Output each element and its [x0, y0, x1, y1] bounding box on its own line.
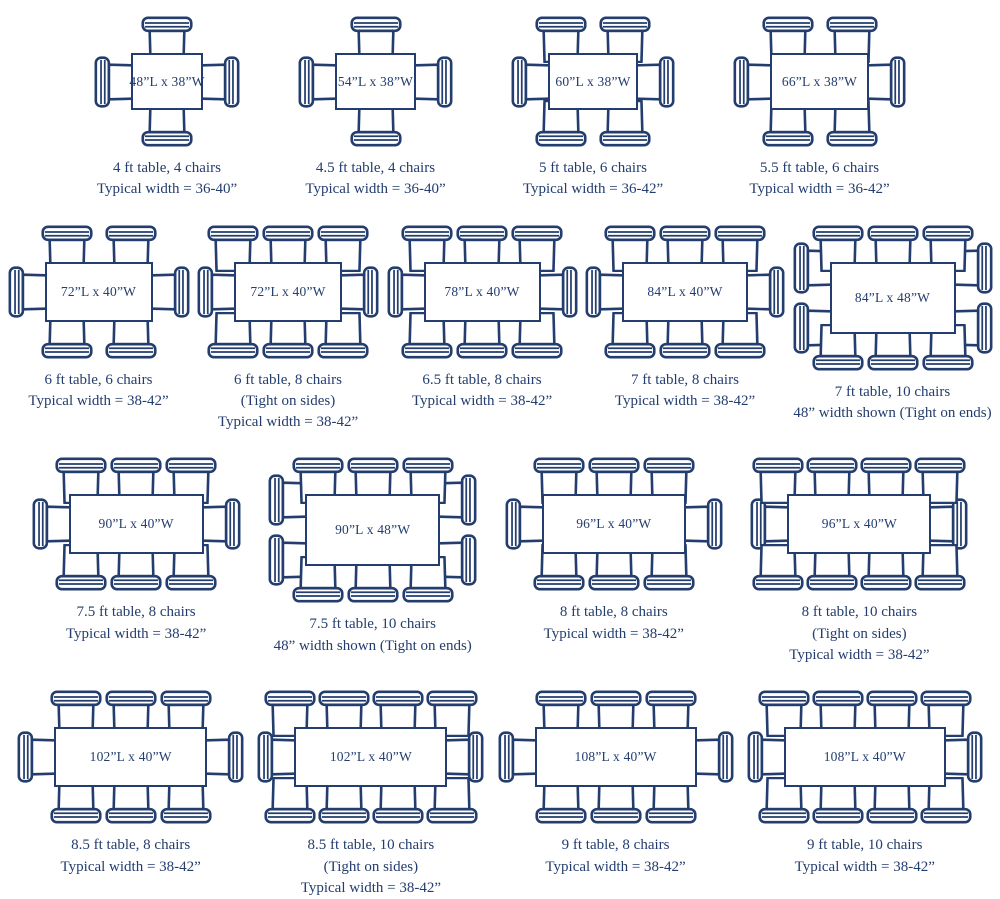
- diagram-row: 48”L x 38”W4 ft table, 4 chairsTypical w…: [0, 16, 1000, 201]
- table-size-label: 48”L x 38”W: [129, 74, 204, 90]
- caption-line: Typical width = 38-42”: [66, 624, 206, 645]
- caption-line: 7.5 ft table, 10 chairs: [274, 614, 472, 635]
- figure-caption: 7.5 ft table, 8 chairsTypical width = 38…: [66, 602, 206, 645]
- table-size-label: 108”L x 40”W: [575, 749, 657, 765]
- table-seating-diagram: 48”L x 38”W4 ft table, 4 chairsTypical w…: [0, 0, 1000, 899]
- table-top: 78”L x 40”W: [424, 262, 541, 322]
- table-diagram: 102”L x 40”W: [17, 690, 244, 824]
- table-top: 90”L x 40”W: [69, 494, 204, 554]
- diagram-row: 90”L x 40”W7.5 ft table, 8 chairsTypical…: [0, 457, 1000, 666]
- table-top: 66”L x 38”W: [770, 53, 869, 110]
- figure-caption: 8.5 ft table, 10 chairs(Tight on sides)T…: [301, 835, 441, 899]
- table-size-label: 60”L x 38”W: [555, 74, 630, 90]
- table-figure: 72”L x 40”W6 ft table, 6 chairsTypical w…: [8, 225, 190, 413]
- table-diagram: 96”L x 40”W: [750, 457, 968, 591]
- table-figure: 96”L x 40”W8 ft table, 8 chairsTypical w…: [505, 457, 723, 645]
- table-diagram: 54”L x 38”W: [298, 16, 453, 147]
- table-figure: 66”L x 38”W5.5 ft table, 6 chairsTypical…: [733, 16, 906, 201]
- caption-line: Typical width = 38-42”: [61, 857, 201, 878]
- table-figure: 90”L x 40”W7.5 ft table, 8 chairsTypical…: [32, 457, 241, 645]
- table-figure: 60”L x 38”W5 ft table, 6 chairsTypical w…: [511, 16, 675, 201]
- figure-caption: 7 ft table, 8 chairsTypical width = 38-4…: [615, 370, 755, 413]
- table-top: 96”L x 40”W: [787, 494, 931, 554]
- caption-line: 5 ft table, 6 chairs: [523, 158, 663, 179]
- figure-caption: 4.5 ft table, 4 chairsTypical width = 36…: [305, 158, 445, 201]
- table-size-label: 96”L x 40”W: [576, 516, 651, 532]
- caption-line: 7.5 ft table, 8 chairs: [66, 602, 206, 623]
- table-figure: 54”L x 38”W4.5 ft table, 4 chairsTypical…: [298, 16, 453, 201]
- caption-line: 4 ft table, 4 chairs: [97, 158, 237, 179]
- table-diagram: 78”L x 40”W: [387, 225, 578, 359]
- caption-line: Typical width = 38-42”: [301, 878, 441, 899]
- table-diagram: 72”L x 40”W: [8, 225, 190, 359]
- table-figure: 102”L x 40”W8.5 ft table, 10 chairs(Tigh…: [257, 690, 484, 899]
- caption-line: Typical width = 36-40”: [305, 179, 445, 200]
- caption-line: Typical width = 38-42”: [218, 412, 358, 433]
- table-diagram: 48”L x 38”W: [94, 16, 240, 147]
- table-top: 54”L x 38”W: [335, 53, 416, 110]
- table-figure: 108”L x 40”W9 ft table, 8 chairsTypical …: [498, 690, 734, 878]
- table-figure: 84”L x 40”W7 ft table, 8 chairsTypical w…: [585, 225, 785, 413]
- table-top: 102”L x 40”W: [54, 727, 207, 787]
- table-size-label: 102”L x 40”W: [330, 749, 412, 765]
- caption-line: 6 ft table, 8 chairs: [218, 370, 358, 391]
- figure-caption: 6 ft table, 8 chairs(Tight on sides)Typi…: [218, 370, 358, 434]
- figure-caption: 7.5 ft table, 10 chairs48” width shown (…: [274, 614, 472, 657]
- caption-line: 48” width shown (Tight on ends): [793, 403, 991, 424]
- caption-line: 48” width shown (Tight on ends): [274, 636, 472, 657]
- table-size-label: 66”L x 38”W: [782, 74, 857, 90]
- caption-line: 5.5 ft table, 6 chairs: [749, 158, 889, 179]
- figure-caption: 9 ft table, 8 chairsTypical width = 38-4…: [545, 835, 685, 878]
- caption-line: (Tight on sides): [789, 624, 929, 645]
- table-size-label: 72”L x 40”W: [61, 284, 136, 300]
- table-top: 84”L x 48”W: [830, 262, 956, 334]
- table-top: 108”L x 40”W: [784, 727, 946, 787]
- table-size-label: 90”L x 40”W: [99, 516, 174, 532]
- caption-line: Typical width = 36-42”: [523, 179, 663, 200]
- table-diagram: 84”L x 48”W: [793, 225, 993, 371]
- table-size-label: 108”L x 40”W: [824, 749, 906, 765]
- figure-caption: 8 ft table, 10 chairs(Tight on sides)Typ…: [789, 602, 929, 666]
- figure-caption: 4 ft table, 4 chairsTypical width = 36-4…: [97, 158, 237, 201]
- table-figure: 84”L x 48”W7 ft table, 10 chairs48” widt…: [793, 225, 993, 425]
- table-top: 108”L x 40”W: [535, 727, 697, 787]
- table-figure: 90”L x 48”W7.5 ft table, 10 chairs48” wi…: [268, 457, 477, 657]
- table-diagram: 84”L x 40”W: [585, 225, 785, 359]
- caption-line: Typical width = 36-40”: [97, 179, 237, 200]
- figure-caption: 5.5 ft table, 6 chairsTypical width = 36…: [749, 158, 889, 201]
- figure-caption: 6 ft table, 6 chairsTypical width = 38-4…: [28, 370, 168, 413]
- caption-line: 4.5 ft table, 4 chairs: [305, 158, 445, 179]
- table-top: 72”L x 40”W: [234, 262, 342, 322]
- caption-line: Typical width = 38-42”: [615, 391, 755, 412]
- caption-line: Typical width = 38-42”: [412, 391, 552, 412]
- figure-caption: 8.5 ft table, 8 chairsTypical width = 38…: [61, 835, 201, 878]
- table-diagram: 96”L x 40”W: [505, 457, 723, 591]
- table-diagram: 108”L x 40”W: [747, 690, 983, 824]
- figure-caption: 7 ft table, 10 chairs48” width shown (Ti…: [793, 382, 991, 425]
- table-figure: 96”L x 40”W8 ft table, 10 chairs(Tight o…: [750, 457, 968, 666]
- table-size-label: 84”L x 48”W: [855, 290, 930, 306]
- table-diagram: 108”L x 40”W: [498, 690, 734, 824]
- table-size-label: 96”L x 40”W: [822, 516, 897, 532]
- table-size-label: 84”L x 40”W: [647, 284, 722, 300]
- diagram-row: 72”L x 40”W6 ft table, 6 chairsTypical w…: [0, 225, 1000, 434]
- caption-line: 7 ft table, 10 chairs: [793, 382, 991, 403]
- caption-line: Typical width = 38-42”: [28, 391, 168, 412]
- table-size-label: 78”L x 40”W: [444, 284, 519, 300]
- table-figure: 48”L x 38”W4 ft table, 4 chairsTypical w…: [94, 16, 240, 201]
- table-top: 102”L x 40”W: [294, 727, 447, 787]
- table-diagram: 66”L x 38”W: [733, 16, 906, 147]
- figure-caption: 5 ft table, 6 chairsTypical width = 36-4…: [523, 158, 663, 201]
- table-top: 96”L x 40”W: [542, 494, 686, 554]
- table-size-label: 102”L x 40”W: [90, 749, 172, 765]
- caption-line: Typical width = 38-42”: [795, 857, 935, 878]
- table-figure: 108”L x 40”W9 ft table, 10 chairsTypical…: [747, 690, 983, 878]
- table-diagram: 90”L x 40”W: [32, 457, 241, 591]
- caption-line: Typical width = 38-42”: [789, 645, 929, 666]
- table-size-label: 54”L x 38”W: [338, 74, 413, 90]
- table-top: 72”L x 40”W: [45, 262, 153, 322]
- caption-line: 7 ft table, 8 chairs: [615, 370, 755, 391]
- caption-line: Typical width = 38-42”: [544, 624, 684, 645]
- table-figure: 72”L x 40”W6 ft table, 8 chairs(Tight on…: [197, 225, 379, 434]
- caption-line: (Tight on sides): [218, 391, 358, 412]
- table-diagram: 102”L x 40”W: [257, 690, 484, 824]
- table-top: 90”L x 48”W: [305, 494, 440, 566]
- table-top: 60”L x 38”W: [548, 53, 638, 110]
- table-figure: 102”L x 40”W8.5 ft table, 8 chairsTypica…: [17, 690, 244, 878]
- table-diagram: 72”L x 40”W: [197, 225, 379, 359]
- caption-line: 8 ft table, 8 chairs: [544, 602, 684, 623]
- table-top: 84”L x 40”W: [622, 262, 748, 322]
- caption-line: (Tight on sides): [301, 857, 441, 878]
- table-top: 48”L x 38”W: [131, 53, 203, 110]
- table-size-label: 90”L x 48”W: [335, 522, 410, 538]
- caption-line: Typical width = 36-42”: [749, 179, 889, 200]
- caption-line: 6.5 ft table, 8 chairs: [412, 370, 552, 391]
- figure-caption: 6.5 ft table, 8 chairsTypical width = 38…: [412, 370, 552, 413]
- figure-caption: 9 ft table, 10 chairsTypical width = 38-…: [795, 835, 935, 878]
- table-diagram: 60”L x 38”W: [511, 16, 675, 147]
- diagram-row: 102”L x 40”W8.5 ft table, 8 chairsTypica…: [0, 690, 1000, 899]
- caption-line: 6 ft table, 6 chairs: [28, 370, 168, 391]
- table-diagram: 90”L x 48”W: [268, 457, 477, 603]
- caption-line: Typical width = 38-42”: [545, 857, 685, 878]
- table-size-label: 72”L x 40”W: [250, 284, 325, 300]
- figure-caption: 8 ft table, 8 chairsTypical width = 38-4…: [544, 602, 684, 645]
- caption-line: 8 ft table, 10 chairs: [789, 602, 929, 623]
- table-figure: 78”L x 40”W6.5 ft table, 8 chairsTypical…: [387, 225, 578, 413]
